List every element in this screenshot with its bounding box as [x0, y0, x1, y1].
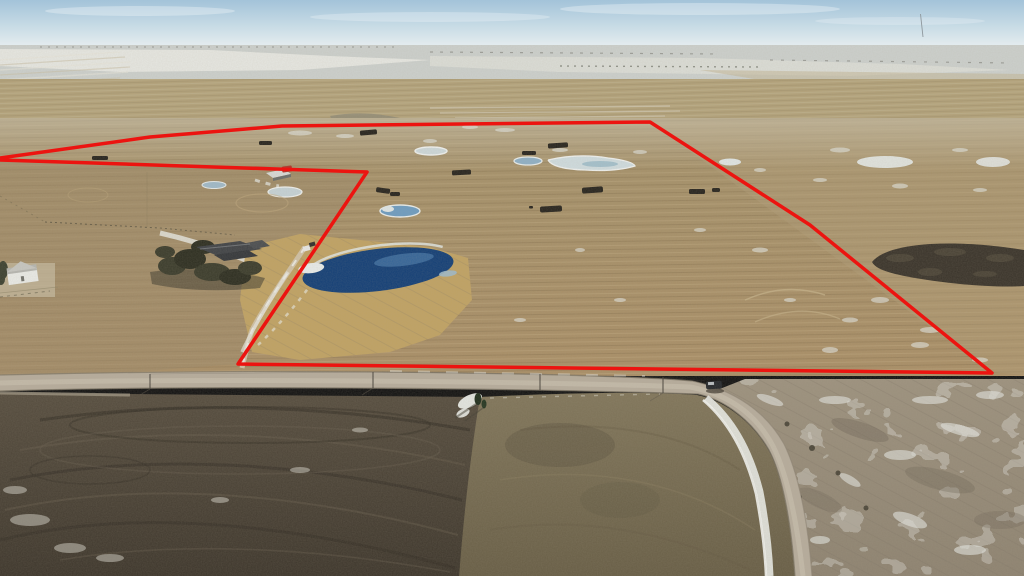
aerial-photo — [0, 0, 1024, 576]
sky — [0, 0, 1024, 47]
